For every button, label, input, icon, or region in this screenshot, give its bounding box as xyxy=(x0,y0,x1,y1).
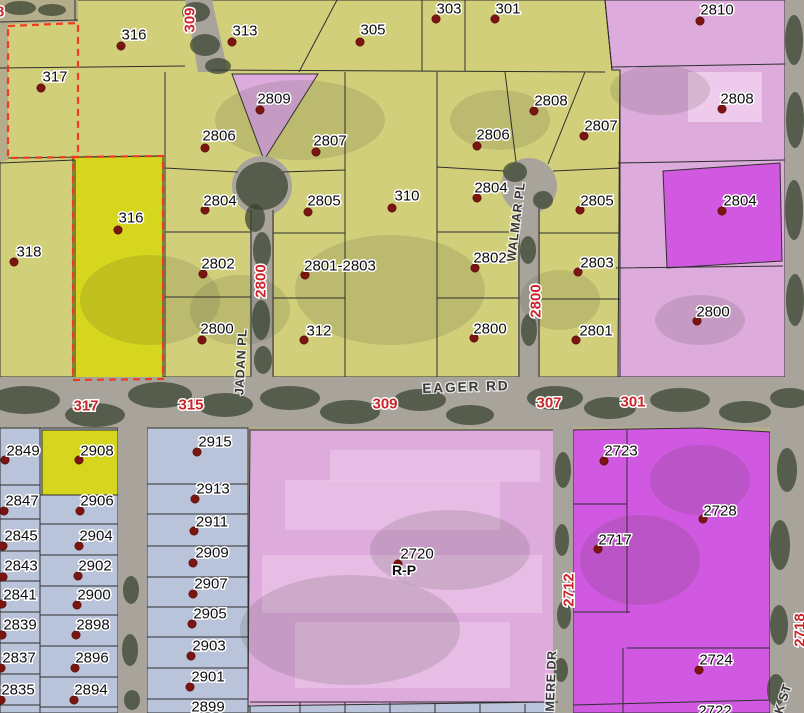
parcel-number: 2905 xyxy=(193,606,226,623)
parcel-number: 2902 xyxy=(78,558,111,575)
parcel-number: 2807 xyxy=(584,118,617,135)
parcel-number: 2804 xyxy=(474,180,507,197)
parcel-number: 2804 xyxy=(203,193,236,210)
parcel-number: 2806 xyxy=(202,128,235,145)
parcel-number: 2717 xyxy=(598,532,631,549)
parcel-number: 2847 xyxy=(5,493,38,510)
parcel-number: 2907 xyxy=(194,576,227,593)
parcel-number: 2841 xyxy=(3,587,36,604)
parcel-number: 2808 xyxy=(720,91,753,108)
parcel-number: 2835 xyxy=(1,682,34,699)
road-mid-left xyxy=(118,427,147,713)
road-block-label: 309 xyxy=(182,7,199,32)
parcel-number: 2896 xyxy=(75,650,108,667)
parcel-number: 313 xyxy=(232,23,257,40)
parcel-map-viewport[interactable]: 3163133053033013173183162806280928072804… xyxy=(0,0,804,713)
parcel-number: 2800 xyxy=(696,304,729,321)
parcel-number: 318 xyxy=(16,244,41,261)
parcel-number: 2801-2803 xyxy=(304,258,376,275)
street-name-label: EAGER RD xyxy=(422,378,510,396)
parcel-number: 2904 xyxy=(79,528,112,545)
parcel-2804-polygon[interactable] xyxy=(663,163,782,268)
parcel-number: 2915 xyxy=(198,434,231,451)
parcel-number: 312 xyxy=(306,323,331,340)
parcel-number: 2837 xyxy=(2,650,35,667)
parcel-number: 2900 xyxy=(77,587,110,604)
road-block-label: 317 xyxy=(73,398,98,415)
parcel-number: 2809 xyxy=(257,91,290,108)
parcel-number: 2845 xyxy=(4,528,37,545)
parcel-number: 2911 xyxy=(196,514,228,531)
parcel-map-canvas[interactable]: 3163133053033013173183162806280928072804… xyxy=(0,0,804,713)
parcel-dot xyxy=(201,144,209,152)
road-block-label: 2800 xyxy=(528,284,545,317)
parcel-number: 2805 xyxy=(580,193,613,210)
road-block-label: 301 xyxy=(620,394,645,411)
parcel-number: 2894 xyxy=(74,682,107,699)
parcel-number: 2908 xyxy=(80,443,113,460)
parcel-number: 2800 xyxy=(473,321,506,338)
parcel-label[interactable]: 2899 xyxy=(191,699,224,713)
parcel-number: 2800 xyxy=(200,321,233,338)
parcel-dot xyxy=(388,204,396,212)
parcel-number: 301 xyxy=(495,1,520,18)
parcel-number: 305 xyxy=(360,22,385,39)
parcel-number: 2806 xyxy=(476,127,509,144)
zoning-code-label[interactable]: R-P xyxy=(392,562,416,578)
parcel-dot xyxy=(356,38,364,46)
parcel-number: 2724 xyxy=(699,652,732,669)
parcel-number: R-P xyxy=(392,562,416,578)
parcel-number: 2906 xyxy=(80,493,113,510)
parcel-number: 2808 xyxy=(534,93,567,110)
parcel-number: 2899 xyxy=(191,699,224,713)
road-block-label: 8 xyxy=(0,4,4,21)
parcel-number: 2720 xyxy=(400,546,433,563)
parcel-number: 2807 xyxy=(313,133,346,150)
parcel-number: 303 xyxy=(436,1,461,18)
parcel-number: 2722 xyxy=(698,703,731,713)
parcel-number: 2898 xyxy=(76,617,109,634)
parcel-number: 2803 xyxy=(580,255,613,272)
parcel-number: 2903 xyxy=(192,638,225,655)
parcel-number: 316 xyxy=(118,210,143,227)
parcel-number: 2810 xyxy=(700,2,733,19)
parcel-label[interactable]: 2722 xyxy=(698,703,731,713)
parcel-number: 2728 xyxy=(703,503,736,520)
parcel-number: 2909 xyxy=(195,545,228,562)
road-block-label: 2712 xyxy=(561,573,578,606)
parcel-number: 2849 xyxy=(6,443,39,460)
parcel-number: 2723 xyxy=(604,443,637,460)
parcel-number: 2802 xyxy=(201,256,234,273)
parcel-number: 2801 xyxy=(579,323,612,340)
road-block-label: 307 xyxy=(536,395,561,412)
parcel-number: 317 xyxy=(42,69,67,86)
road-block-label: 315 xyxy=(178,397,203,414)
parcel-number: 2805 xyxy=(307,193,340,210)
road-block-label: 309 xyxy=(372,396,397,413)
parcel-number: 2802 xyxy=(473,250,506,267)
parcel-number: 316 xyxy=(121,27,146,44)
road-block-label: 2800 xyxy=(253,264,270,297)
parcel-number: 2804 xyxy=(723,193,756,210)
parcel-number: 2843 xyxy=(4,558,37,575)
parcel-number: 310 xyxy=(394,188,419,205)
road-block-label: 2718 xyxy=(792,613,804,646)
parcel-dot xyxy=(114,226,122,234)
street-name-label: MERE DR xyxy=(543,650,559,712)
parcel-number: 2839 xyxy=(3,617,36,634)
parcel-number: 2913 xyxy=(196,481,229,498)
parcel-number: 2901 xyxy=(191,669,224,686)
